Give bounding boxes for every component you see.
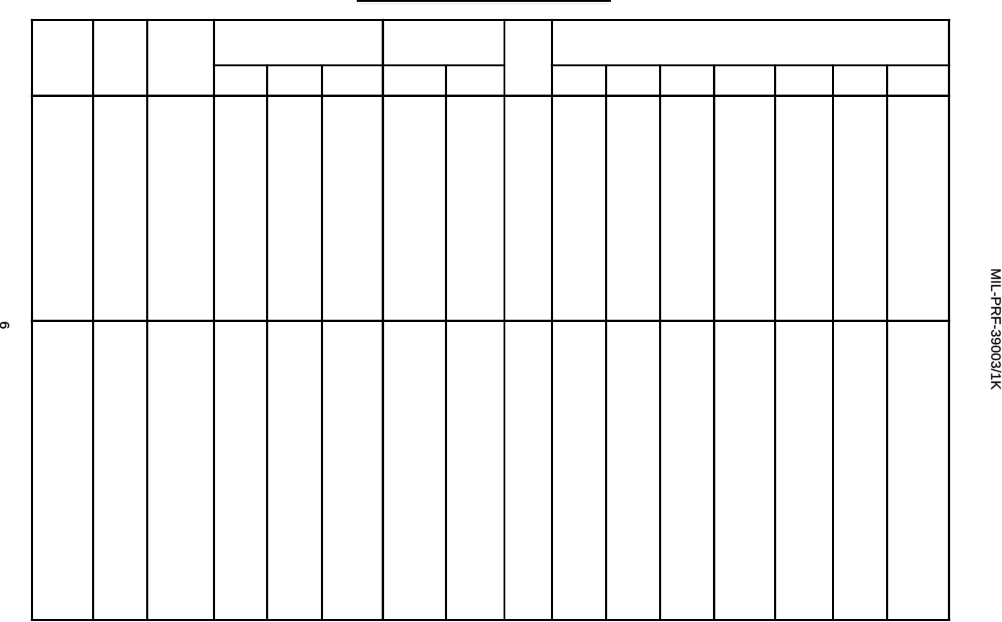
svg-text:6: 6 xyxy=(0,321,13,329)
svg-text:MIL-PRF-39003/1K: MIL-PRF-39003/1K xyxy=(988,268,1002,390)
